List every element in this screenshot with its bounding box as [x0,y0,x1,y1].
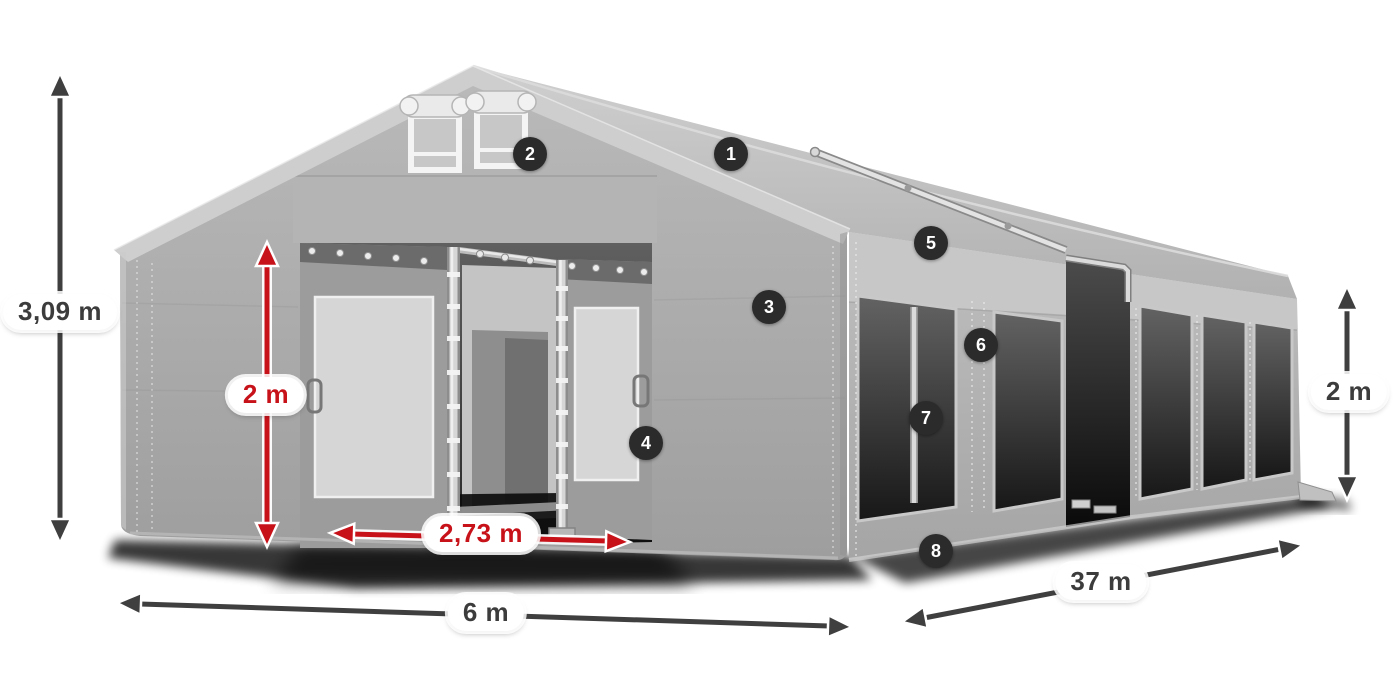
marker-5-side-valance[interactable]: 5 [914,226,948,260]
entrance-opening [300,243,652,548]
entrance-header [293,176,657,243]
marker-4-door-edge[interactable]: 4 [629,426,663,460]
side-window-mesh [1254,322,1292,480]
marker-1-roof[interactable]: 1 [714,137,748,171]
door-window [575,308,638,480]
frame-foot [1094,506,1116,513]
left-door-panel [300,243,447,548]
corner-foot [1298,482,1336,501]
dimension-label-total-height: 3,09 m [3,294,117,330]
side-open-section [1066,258,1130,527]
tent-illustration [0,0,1400,700]
marker-8-sidewall-skirt[interactable]: 8 [919,534,953,568]
marker-2-gable-vents[interactable]: 2 [513,137,547,171]
marker-3-front-wall[interactable]: 3 [752,290,786,324]
dimension-label-front-width: 6 m [448,595,524,631]
marker-6-sidewall-strip[interactable]: 6 [964,328,998,362]
side-window-mesh [858,296,956,521]
marker-7-inner-pole[interactable]: 7 [909,401,943,435]
side-window-mesh [994,312,1062,511]
dimension-label-entrance-height: 2 m [228,377,304,413]
dimension-label-entrance-width: 2,73 m [424,516,538,552]
door-window [315,297,433,497]
dimension-label-side-length: 37 m [1055,564,1146,600]
frame-foot [1072,500,1090,508]
side-window-mesh [1202,315,1246,489]
tent-diagram: 3,09 m 2 m 2,73 m 6 m 37 m 2 m 1 2 3 4 5… [0,0,1400,700]
dimension-label-side-height: 2 m [1311,374,1387,410]
side-window-mesh [1140,306,1192,499]
right-door-panel [558,259,652,540]
gable-vent [400,95,470,170]
